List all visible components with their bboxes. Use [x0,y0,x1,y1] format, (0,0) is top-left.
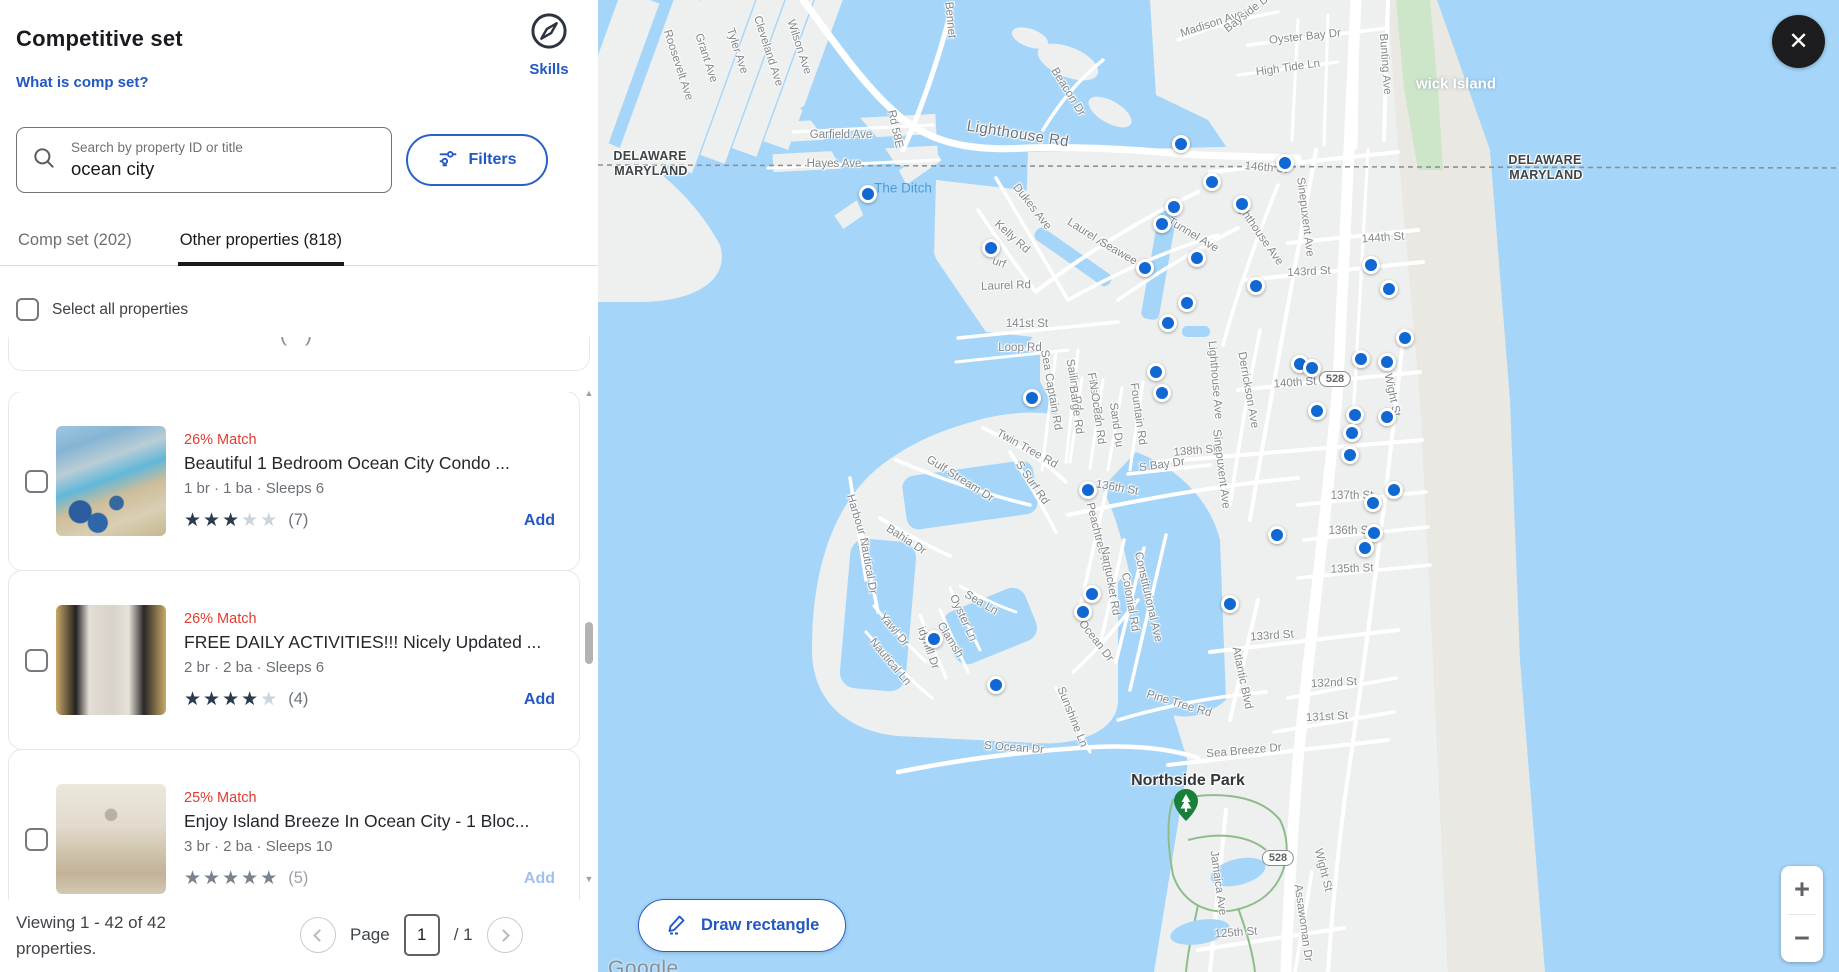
property-checkbox[interactable] [25,470,48,493]
property-title: Beautiful 1 Bedroom Ocean City Condo ... [184,453,555,474]
star-filled-icon: ★ [222,868,241,889]
filters-button[interactable]: Filters [406,134,548,186]
property-marker[interactable] [1074,603,1092,621]
review-count: (5) [288,869,308,888]
add-button[interactable]: Add [524,691,555,709]
panel-header: Competitive set What is comp set? Skills [0,0,598,91]
list-scrollbar[interactable]: ▲ ▼ [582,388,596,898]
property-card: 25% Match Enjoy Island Breeze In Ocean C… [8,749,580,905]
property-marker[interactable] [1346,406,1364,424]
filters-label: Filters [468,151,516,169]
property-marker[interactable] [1352,350,1370,368]
search-value: ocean city [71,157,243,180]
star-filled-icon: ★ [203,689,222,710]
what-is-comp-set-link[interactable]: What is comp set? [16,74,582,91]
star-filled-icon: ★ [203,510,222,531]
close-map-button[interactable]: ✕ [1772,15,1825,68]
skills-button[interactable]: Skills [528,10,570,78]
search-placeholder: Search by property ID or title [71,140,243,157]
property-marker[interactable] [1136,259,1154,277]
select-all-checkbox[interactable] [16,298,39,321]
viewing-count: Viewing 1 - 42 of 42 properties. [16,910,166,963]
tabs: Comp set (202)Other properties (818) [0,223,598,266]
property-marker[interactable] [987,676,1005,694]
prev-page-button[interactable] [300,917,336,953]
search-input[interactable]: Search by property ID or title ocean cit… [16,127,392,193]
property-marker[interactable] [1221,595,1239,613]
star-empty-icon: ★ [241,510,260,531]
star-filled-icon: ★ [222,510,241,531]
star-filled-icon: ★ [184,689,203,710]
property-marker[interactable] [982,239,1000,257]
google-attribution: Google [608,957,679,972]
property-marker[interactable] [1276,154,1294,172]
page-total: / 1 [454,925,473,945]
property-title: FREE DAILY ACTIVITIES!!! Nicely Updated … [184,632,555,653]
property-marker[interactable] [1303,359,1321,377]
property-card: 26% Match FREE DAILY ACTIVITIES!!! Nicel… [8,570,580,750]
star-filled-icon: ★ [184,868,203,889]
property-checkbox[interactable] [25,828,48,851]
property-marker[interactable] [1378,353,1396,371]
star-rating: ★★★★★ [184,690,279,709]
tab-other-properties[interactable]: Other properties (818) [178,223,344,266]
filters-icon [437,147,459,174]
property-marker[interactable] [1364,494,1382,512]
property-marker[interactable] [1378,408,1396,426]
star-filled-icon: ★ [203,868,222,889]
property-marker[interactable] [1396,329,1414,347]
property-photo [56,784,166,894]
match-percent: 25% Match [184,790,555,806]
zoom-in-button[interactable]: + [1781,866,1823,914]
property-marker[interactable] [1153,384,1171,402]
list-footer: Viewing 1 - 42 of 42 properties. Page 1 … [0,900,598,972]
chevron-left-icon [313,929,326,942]
property-marker[interactable] [1159,314,1177,332]
draw-rectangle-label: Draw rectangle [701,916,819,935]
star-filled-icon: ★ [222,689,241,710]
property-marker[interactable] [859,185,877,203]
star-filled-icon: ★ [241,689,260,710]
park-pin-icon[interactable] [1174,789,1198,826]
property-marker[interactable] [1362,256,1380,274]
search-icon [31,145,57,176]
scrollbar-thumb[interactable] [585,622,593,664]
property-marker[interactable] [1079,481,1097,499]
star-filled-icon: ★ [241,868,260,889]
property-marker[interactable] [1343,424,1361,442]
star-filled-icon: ★ [260,868,279,889]
star-empty-icon: ★ [260,510,279,531]
review-count: (7) [288,511,308,530]
star-empty-icon: ★ [260,689,279,710]
partial-rating-glyph: ( ) [280,337,319,347]
property-marker[interactable] [1385,481,1403,499]
map-base-art [598,0,1839,972]
star-rating: ★★★★★ [184,869,279,888]
property-specs: 3 br · 2 ba · Sleeps 10 [184,838,555,855]
review-count: (4) [288,690,308,709]
add-button[interactable]: Add [524,870,555,888]
property-marker[interactable] [1188,249,1206,267]
tab-comp-set[interactable]: Comp set (202) [16,223,134,266]
match-percent: 26% Match [184,611,555,627]
map-zoom-control: + − [1781,866,1823,962]
pencil-icon [665,911,689,940]
property-marker[interactable] [1268,526,1286,544]
property-marker[interactable] [1023,389,1041,407]
property-marker[interactable] [1178,294,1196,312]
property-marker[interactable] [1233,195,1251,213]
draw-rectangle-button[interactable]: Draw rectangle [638,899,846,952]
competitive-set-panel: Competitive set What is comp set? Skills… [0,0,598,972]
zoom-out-button[interactable]: − [1781,915,1823,963]
property-photo [56,426,166,536]
property-marker[interactable] [1083,585,1101,603]
page-title: Competitive set [16,26,582,52]
property-checkbox[interactable] [25,649,48,672]
property-photo [56,605,166,715]
property-marker[interactable] [1380,280,1398,298]
page-number-input[interactable]: 1 [404,914,440,956]
property-specs: 1 br · 1 ba · Sleeps 6 [184,480,555,497]
property-marker[interactable] [1165,198,1183,216]
property-marker[interactable] [1308,402,1326,420]
property-marker[interactable] [925,630,943,648]
property-marker[interactable] [1356,539,1374,557]
scroll-down-icon[interactable]: ▼ [582,874,596,884]
compass-icon [528,39,570,56]
star-filled-icon: ★ [184,510,203,531]
select-all-label: Select all properties [52,301,188,319]
property-list: 26% Match Beautiful 1 Bedroom Ocean City… [8,392,580,905]
property-marker[interactable] [1247,277,1265,295]
property-marker[interactable] [1203,173,1221,191]
property-title: Enjoy Island Breeze In Ocean City - 1 Bl… [184,811,555,832]
pagination: Page 1 / 1 [300,914,523,956]
close-icon: ✕ [1788,30,1808,54]
scroll-up-icon[interactable]: ▲ [582,388,596,398]
skills-label: Skills [528,61,570,78]
map-canvas[interactable]: ✕ + − Draw rectangle Google DELAWAREMARY… [598,0,1839,972]
property-marker[interactable] [1172,135,1190,153]
match-percent: 26% Match [184,432,555,448]
property-card: 26% Match Beautiful 1 Bedroom Ocean City… [8,392,580,571]
property-marker[interactable] [1153,215,1171,233]
add-button[interactable]: Add [524,512,555,530]
next-page-button[interactable] [487,917,523,953]
property-marker[interactable] [1341,446,1359,464]
property-specs: 2 br · 2 ba · Sleeps 6 [184,659,555,676]
chevron-right-icon [497,929,510,942]
page-label: Page [350,925,390,945]
property-marker[interactable] [1147,363,1165,381]
partial-card-above: ( ) [8,337,590,371]
star-rating: ★★★★★ [184,511,279,530]
